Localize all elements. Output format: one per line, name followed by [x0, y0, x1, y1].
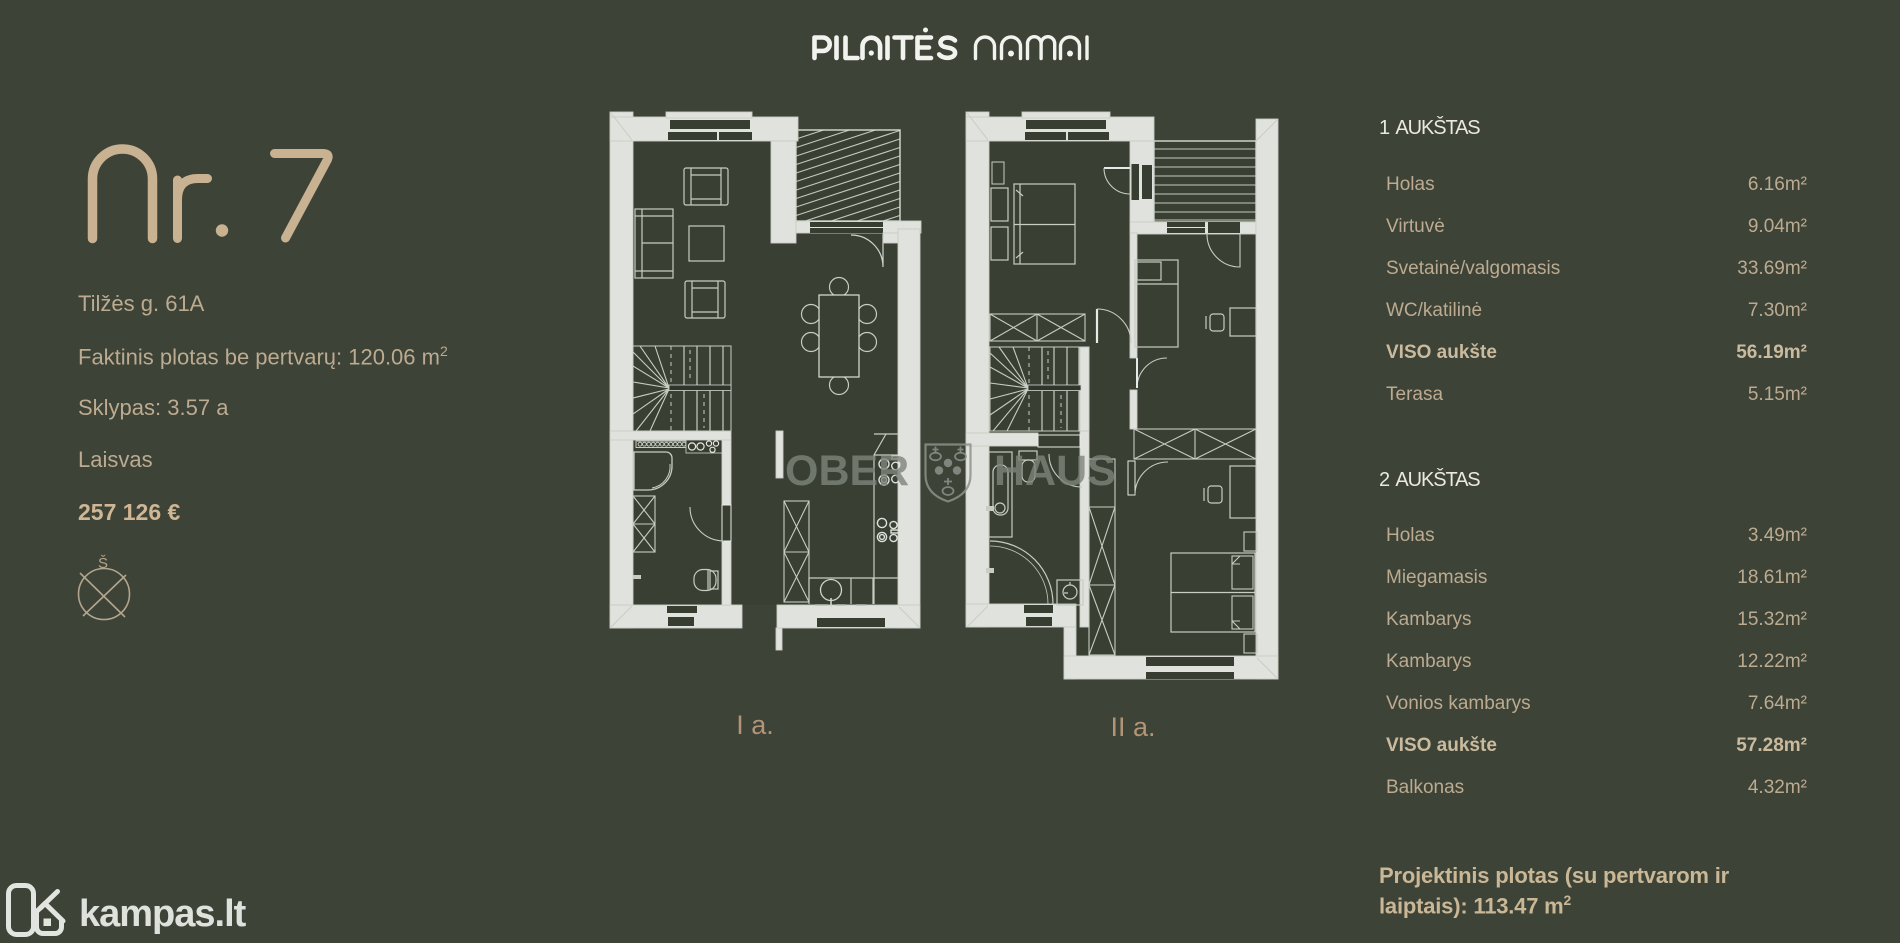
svg-text:kampas.lt: kampas.lt — [79, 893, 247, 935]
